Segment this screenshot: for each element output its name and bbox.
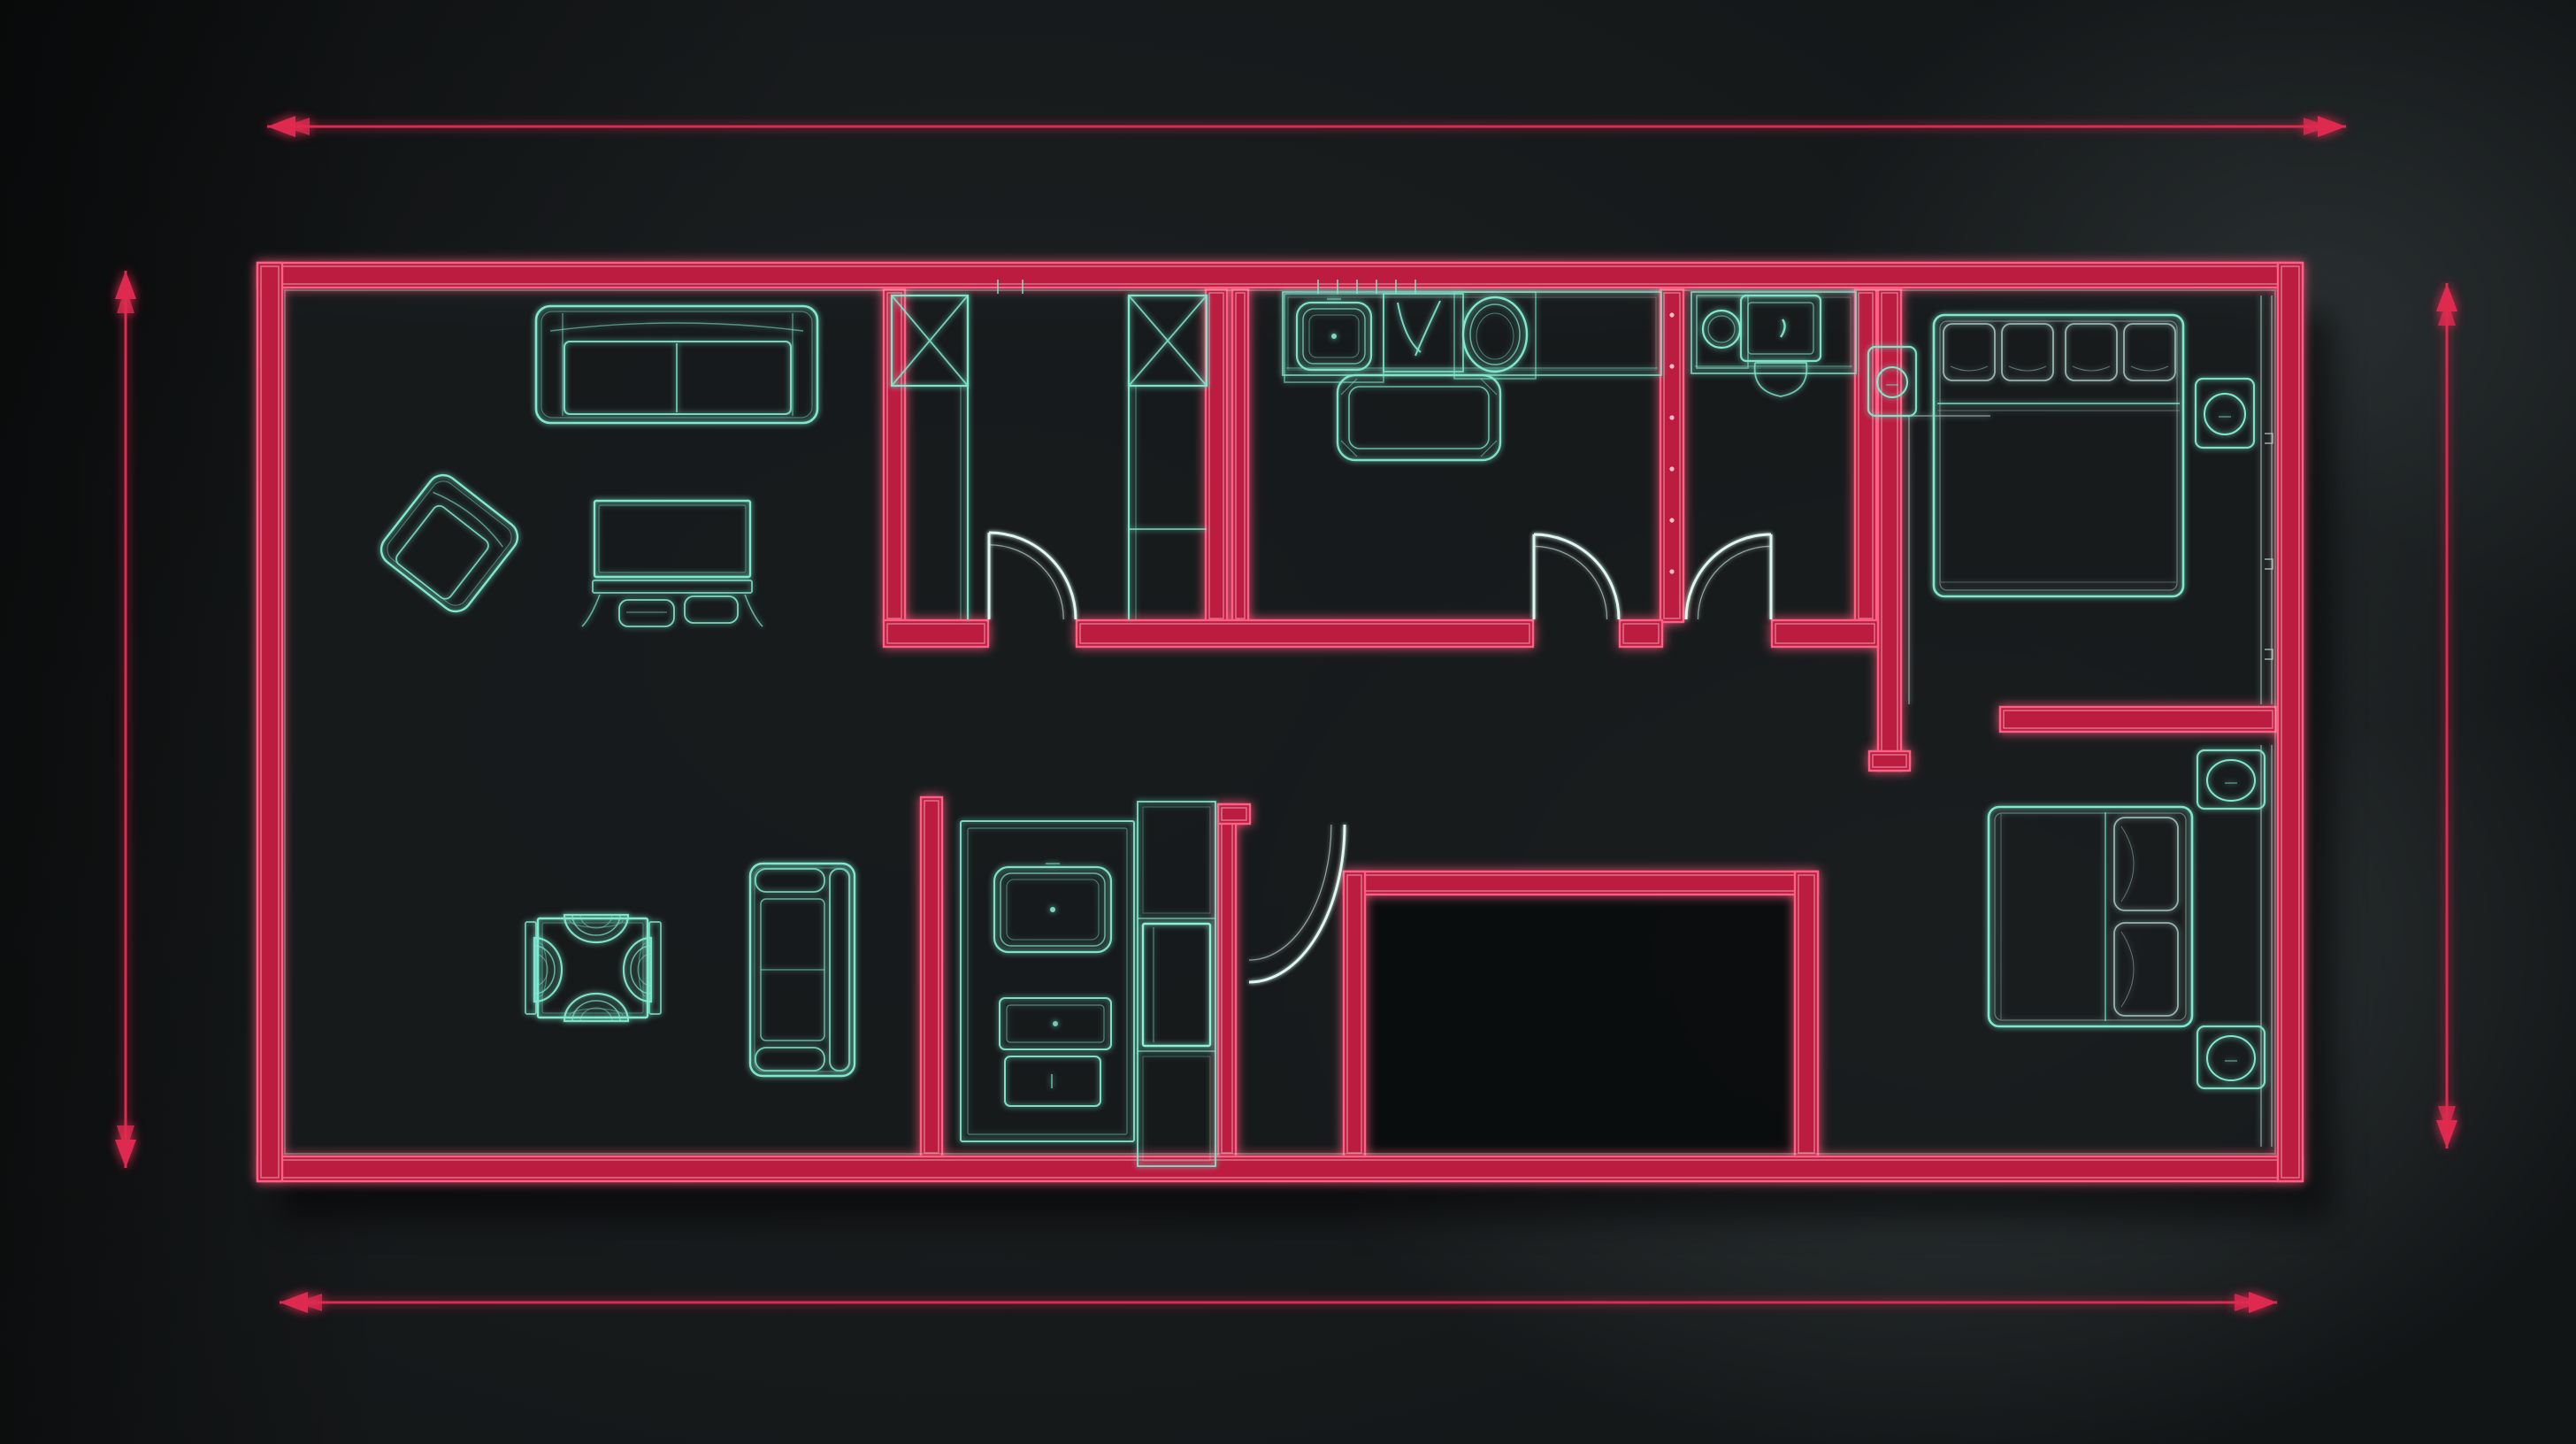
left-height-dimension — [115, 271, 136, 1168]
storage-door-jamb — [1217, 803, 1251, 825]
hinge-dot — [1669, 518, 1674, 522]
hall-south-wall-west — [883, 619, 989, 648]
hall-south-wall-stub — [1619, 619, 1663, 648]
hinge-dot — [1669, 415, 1674, 419]
hinge-dot — [1669, 312, 1674, 317]
right-height-dimension — [2436, 283, 2457, 1148]
storage-east-wall — [1794, 871, 1819, 1157]
outer-wall-right — [2277, 262, 2304, 1182]
hinge-dot — [1669, 569, 1674, 573]
outer-wall-bottom — [257, 1156, 2304, 1182]
storage-room-floor — [1366, 895, 1794, 1157]
hinge-dot — [1669, 466, 1674, 471]
wc-east-wall — [1854, 288, 1877, 623]
bottom-width-dimension — [280, 1292, 2277, 1313]
bedrooms-divider-wall — [1999, 706, 2277, 733]
storage-west-wall — [1343, 871, 1366, 1157]
kitchen-east-wall — [1217, 803, 1237, 1157]
storage-north-wall — [1343, 871, 1819, 895]
floor-plan-canvas — [0, 0, 2576, 1444]
outer-wall-top — [257, 262, 2304, 288]
hall-south-wall-center — [1076, 619, 1534, 648]
hinge-dot — [1669, 364, 1674, 368]
top-width-dimension — [267, 116, 2346, 137]
entry-closet-west-wall — [883, 288, 906, 623]
master-bedroom-west-wall — [1877, 288, 1902, 772]
master-wall-end-cap — [1868, 750, 1911, 772]
outer-wall-left — [257, 262, 283, 1182]
hall-south-wall-east — [1771, 619, 1879, 648]
kitchen-west-wall — [920, 796, 943, 1157]
bathroom-west-wall — [1231, 288, 1249, 623]
floor-plan-svg — [0, 0, 2576, 1444]
entry-east-wall — [1205, 288, 1228, 623]
